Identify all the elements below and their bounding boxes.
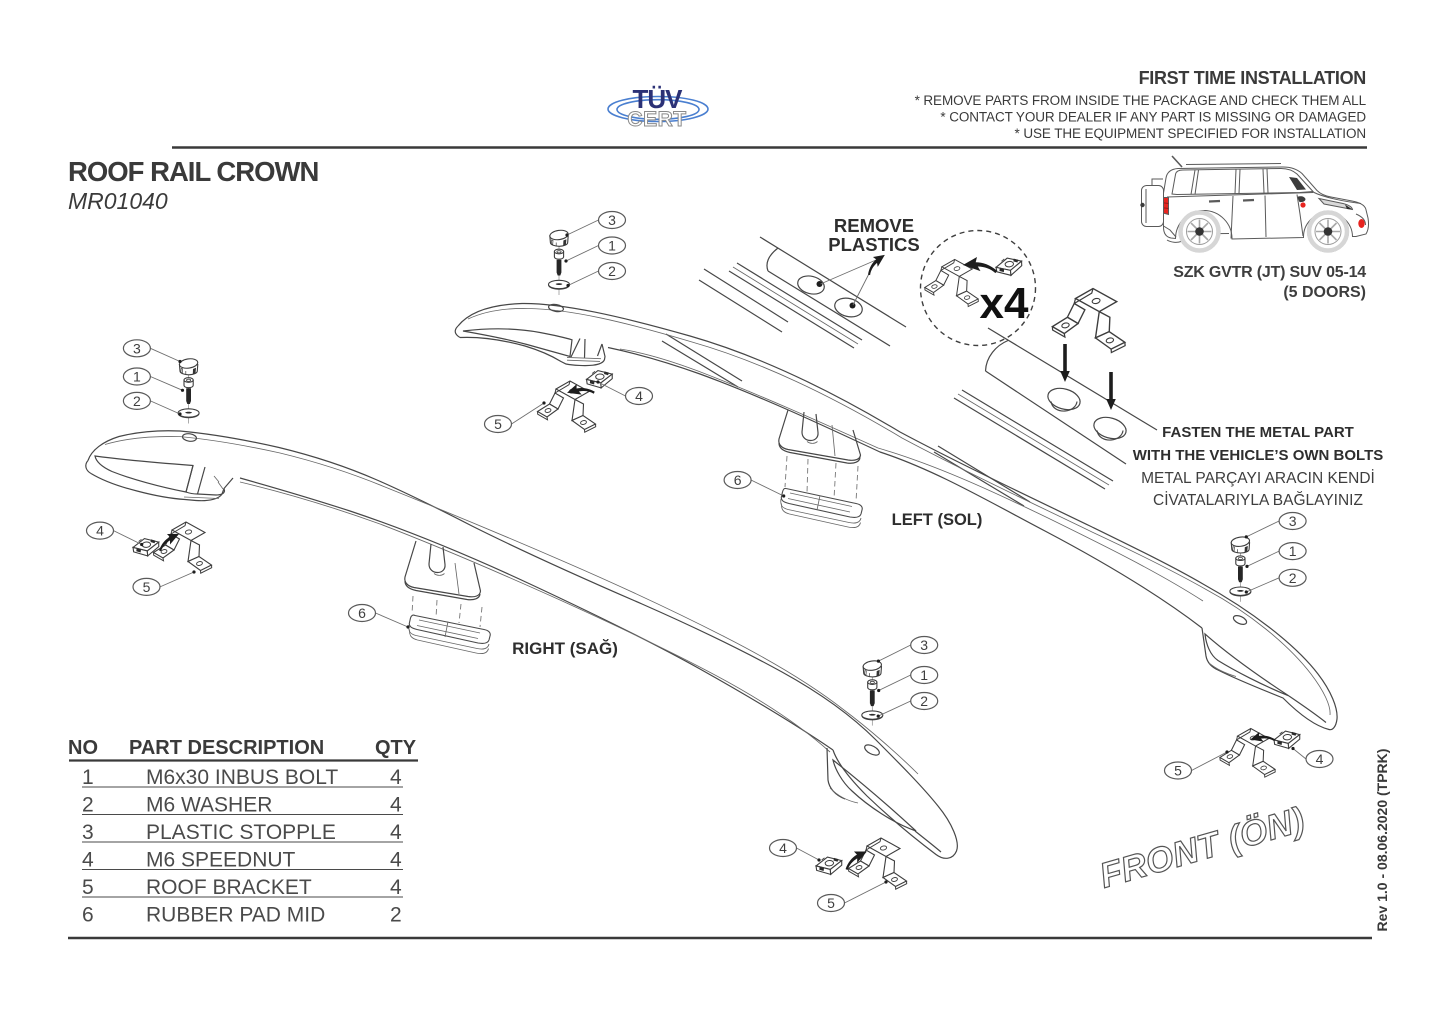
svg-text:2: 2 (1289, 570, 1297, 586)
svg-text:2: 2 (390, 904, 402, 927)
svg-text:1: 1 (920, 667, 928, 683)
svg-text:4: 4 (390, 849, 402, 872)
svg-text:* USE THE EQUIPMENT SPECIFIED: * USE THE EQUIPMENT SPECIFIED FOR INSTAL… (1015, 126, 1366, 141)
svg-text:CİVATALARIYLA BAĞLAYINIZ: CİVATALARIYLA BAĞLAYINIZ (1153, 491, 1363, 509)
svg-text:x4: x4 (980, 279, 1029, 328)
svg-text:M6 SPEEDNUT: M6 SPEEDNUT (146, 849, 296, 872)
svg-text:6: 6 (82, 904, 94, 927)
svg-text:5: 5 (827, 895, 835, 911)
svg-text:5: 5 (143, 579, 151, 595)
svg-text:4: 4 (390, 766, 402, 789)
svg-text:4: 4 (779, 840, 787, 856)
svg-text:4: 4 (96, 523, 104, 539)
svg-text:Rev 1.0 - 08.06.2020 (TPRK): Rev 1.0 - 08.06.2020 (TPRK) (1374, 749, 1390, 932)
svg-text:5: 5 (82, 876, 94, 899)
svg-text:PART DESCRIPTION: PART DESCRIPTION (129, 737, 324, 759)
svg-text:2: 2 (133, 393, 141, 409)
svg-text:2: 2 (920, 693, 928, 709)
svg-text:2: 2 (608, 263, 616, 279)
svg-text:3: 3 (82, 821, 94, 844)
svg-text:REMOVE: REMOVE (834, 215, 914, 236)
svg-text:PLASTICS: PLASTICS (828, 234, 919, 255)
svg-text:6: 6 (358, 605, 366, 621)
svg-text:5: 5 (494, 416, 502, 432)
svg-text:* REMOVE PARTS FROM INSIDE THE: * REMOVE PARTS FROM INSIDE THE PACKAGE A… (915, 93, 1367, 108)
svg-text:1: 1 (1289, 543, 1297, 559)
svg-text:4: 4 (82, 849, 94, 872)
svg-text:* CONTACT YOUR DEALER IF ANY P: * CONTACT YOUR DEALER IF ANY PART IS MIS… (940, 110, 1366, 125)
svg-text:4: 4 (390, 876, 402, 899)
svg-text:NO: NO (68, 737, 98, 759)
svg-text:1: 1 (82, 766, 94, 789)
svg-text:WITH THE VEHICLE’S OWN BOLTS: WITH THE VEHICLE’S OWN BOLTS (1133, 447, 1384, 464)
svg-text:FIRST TIME INSTALLATION: FIRST TIME INSTALLATION (1139, 68, 1366, 88)
svg-text:M6x30 INBUS BOLT: M6x30 INBUS BOLT (146, 766, 338, 789)
svg-text:(5 DOORS): (5 DOORS) (1283, 284, 1366, 301)
svg-text:FASTEN THE METAL PART: FASTEN THE METAL PART (1162, 424, 1354, 441)
svg-text:METAL PARÇAYI ARACIN KENDİ: METAL PARÇAYI ARACIN KENDİ (1141, 469, 1375, 487)
svg-text:1: 1 (608, 238, 616, 254)
svg-text:4: 4 (635, 388, 643, 404)
svg-text:PLASTIC STOPPLE: PLASTIC STOPPLE (146, 821, 336, 844)
svg-text:MR01040: MR01040 (68, 188, 168, 214)
svg-text:3: 3 (1289, 513, 1297, 529)
svg-text:3: 3 (133, 340, 141, 356)
svg-text:QTY: QTY (375, 737, 417, 759)
svg-text:ROOF BRACKET: ROOF BRACKET (146, 876, 312, 899)
svg-text:CERT: CERT (627, 108, 686, 131)
svg-text:4: 4 (390, 794, 402, 817)
svg-text:3: 3 (608, 212, 616, 228)
svg-text:RIGHT (SAĞ): RIGHT (SAĞ) (512, 639, 618, 658)
svg-text:4: 4 (1316, 751, 1324, 767)
svg-text:2: 2 (82, 794, 94, 817)
svg-text:LEFT (SOL): LEFT (SOL) (892, 511, 983, 529)
svg-text:3: 3 (920, 637, 928, 653)
svg-text:4: 4 (390, 821, 402, 844)
svg-text:M6 WASHER: M6 WASHER (146, 794, 272, 817)
svg-text:SZK GVTR (JT) SUV 05-14: SZK GVTR (JT) SUV 05-14 (1173, 264, 1366, 281)
svg-text:ROOF RAIL CROWN: ROOF RAIL CROWN (68, 156, 318, 187)
svg-text:6: 6 (734, 472, 742, 488)
svg-text:5: 5 (1174, 763, 1182, 779)
svg-text:1: 1 (133, 369, 141, 385)
svg-text:RUBBER PAD MID: RUBBER PAD MID (146, 904, 325, 927)
